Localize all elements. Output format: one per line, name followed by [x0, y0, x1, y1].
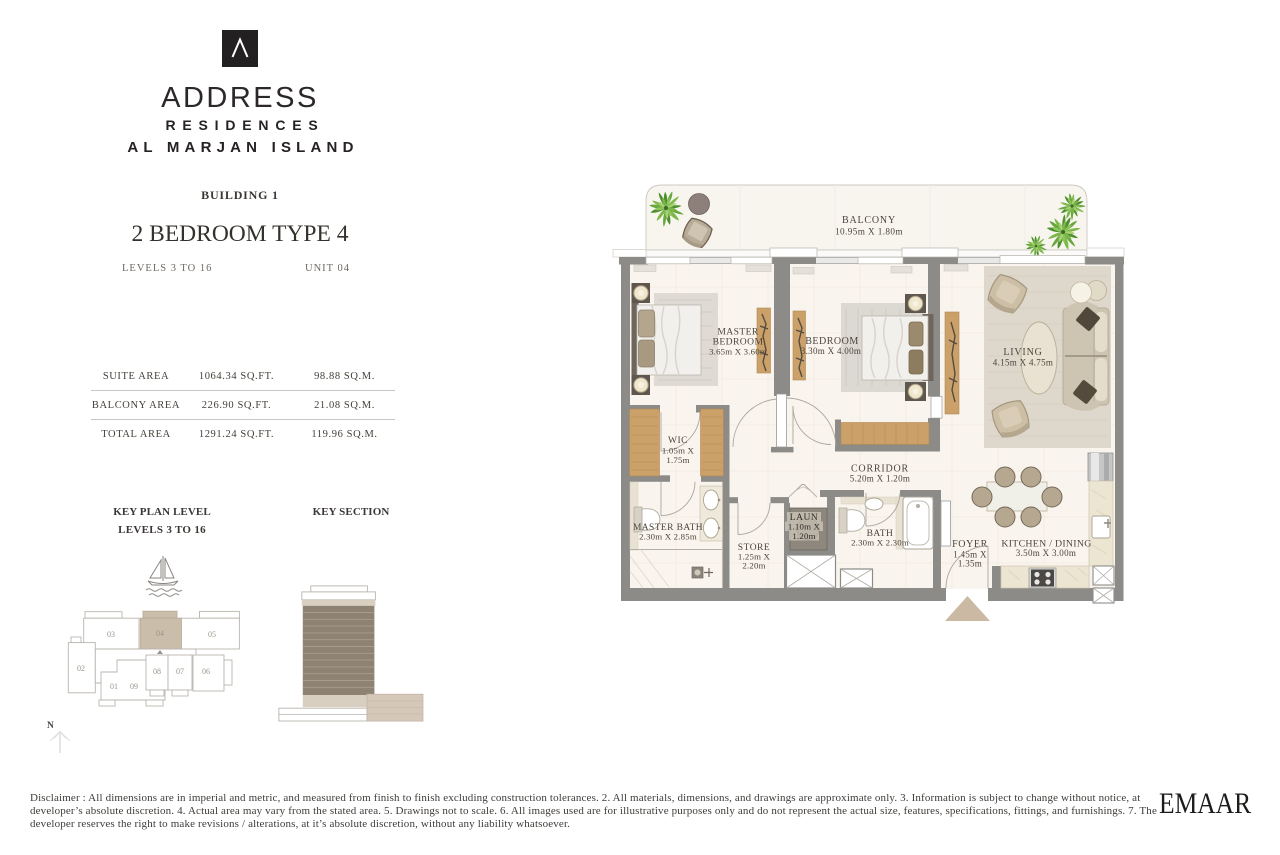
svg-text:4.15m X 4.75m: 4.15m X 4.75m: [993, 358, 1053, 368]
svg-text:07: 07: [176, 667, 184, 676]
svg-text:03: 03: [107, 630, 115, 639]
svg-text:1.35m: 1.35m: [958, 559, 982, 569]
svg-text:09: 09: [130, 682, 138, 691]
svg-text:3.50m X 3.00m: 3.50m X 3.00m: [1016, 548, 1076, 558]
svg-text:02: 02: [77, 664, 85, 673]
svg-text:10.95m X 1.80m: 10.95m X 1.80m: [835, 227, 903, 237]
svg-text:WIC: WIC: [668, 436, 688, 446]
svg-text:5.20m X 1.20m: 5.20m X 1.20m: [850, 474, 910, 484]
svg-text:1.05m X: 1.05m X: [662, 446, 695, 456]
svg-text:3.65m X 3.60m: 3.65m X 3.60m: [709, 347, 767, 357]
svg-text:08: 08: [153, 667, 161, 676]
svg-text:FOYER: FOYER: [952, 539, 988, 550]
svg-text:1.20m: 1.20m: [792, 531, 815, 541]
svg-text:LIVING: LIVING: [1003, 347, 1042, 358]
svg-text:2.30m X 2.85m: 2.30m X 2.85m: [639, 532, 697, 542]
svg-text:04: 04: [156, 629, 164, 638]
svg-text:06: 06: [202, 667, 210, 676]
svg-text:1.75m: 1.75m: [666, 455, 689, 465]
svg-text:2.20m: 2.20m: [742, 561, 765, 571]
svg-text:01: 01: [110, 682, 118, 691]
svg-text:05: 05: [208, 630, 216, 639]
svg-text:BALCONY: BALCONY: [842, 215, 896, 226]
svg-text:2.30m X 2.30m: 2.30m X 2.30m: [851, 538, 909, 548]
svg-text:N: N: [47, 721, 54, 731]
svg-text:3.30m X 4.00m: 3.30m X 4.00m: [801, 346, 861, 356]
svg-text:1.10m X: 1.10m X: [788, 522, 821, 532]
